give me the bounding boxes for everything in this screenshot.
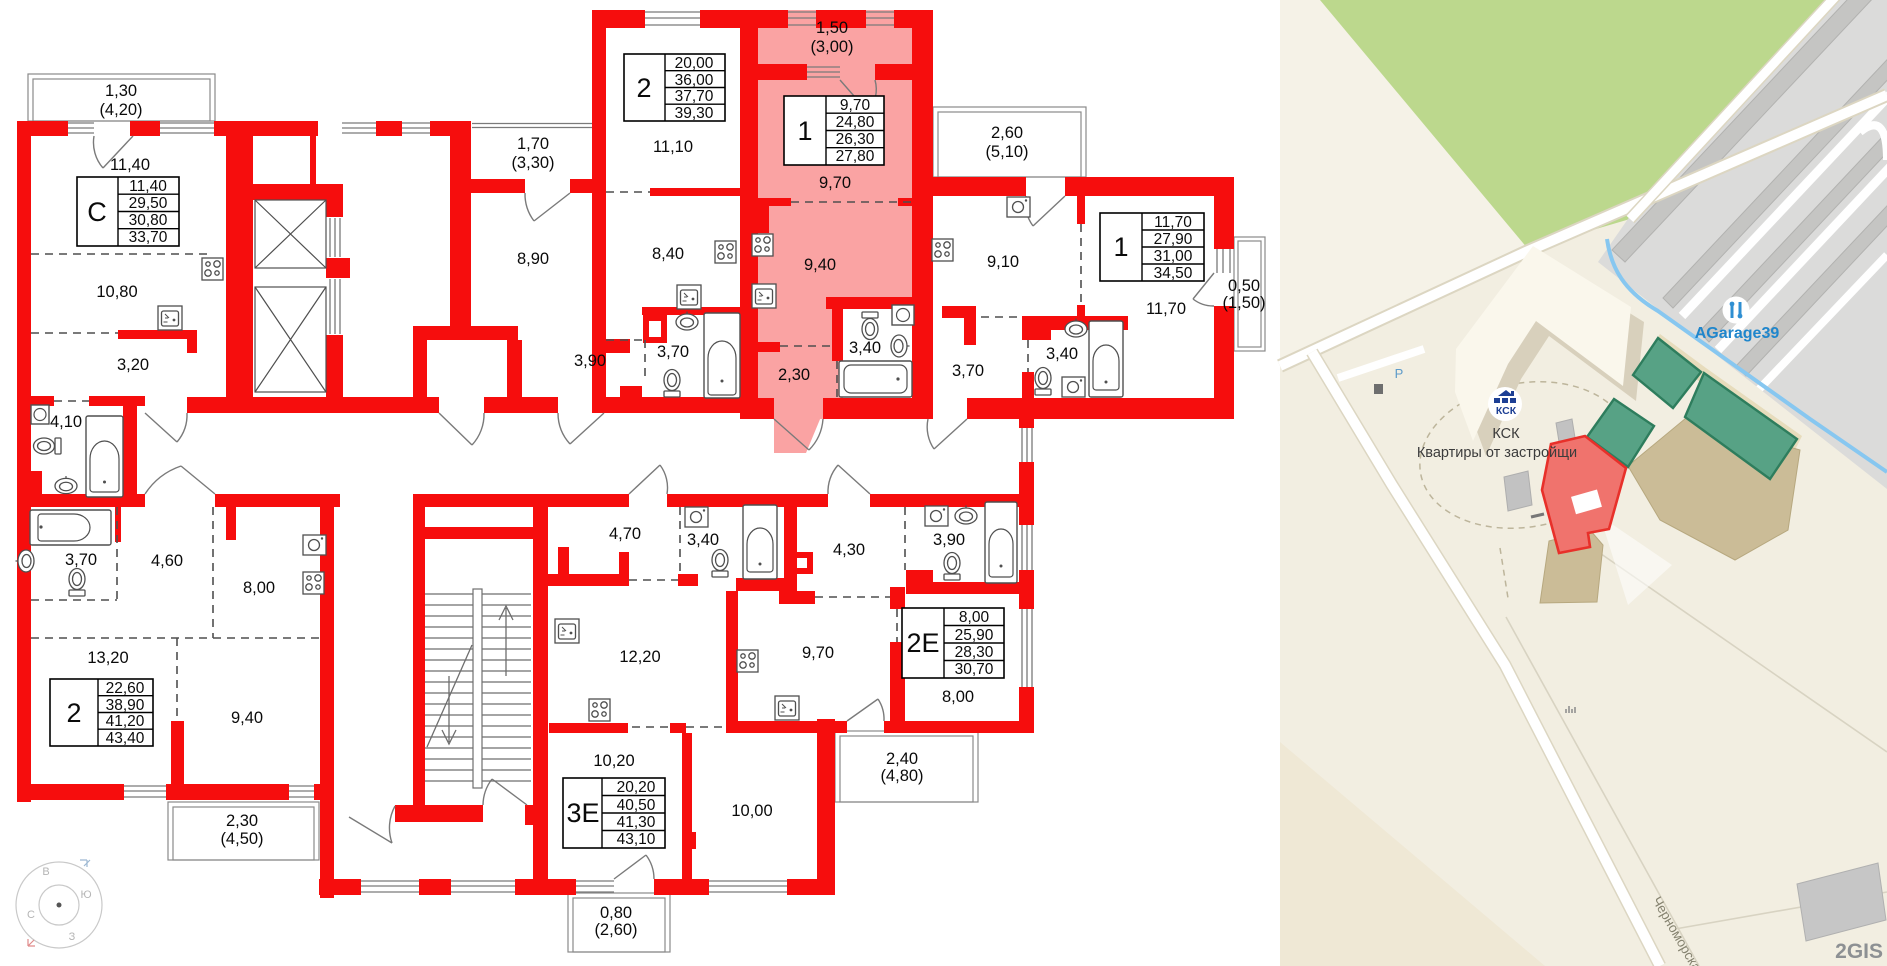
svg-text:1: 1 — [797, 116, 812, 146]
svg-text:3,70: 3,70 — [657, 343, 689, 361]
svg-text:2,30: 2,30 — [226, 812, 258, 830]
svg-text:Р: Р — [1395, 366, 1404, 381]
svg-text:33,70: 33,70 — [129, 229, 168, 246]
svg-text:3Е: 3Е — [566, 798, 599, 828]
svg-text:8,90: 8,90 — [517, 250, 549, 268]
svg-text:26,30: 26,30 — [836, 131, 875, 148]
svg-text:11,40: 11,40 — [129, 178, 167, 195]
svg-text:3,40: 3,40 — [1046, 345, 1078, 363]
svg-text:11,10: 11,10 — [653, 138, 693, 156]
svg-text:(3,00): (3,00) — [810, 38, 853, 56]
svg-text:27,90: 27,90 — [1154, 231, 1193, 248]
svg-text:43,10: 43,10 — [617, 831, 656, 848]
svg-text:10,00: 10,00 — [731, 802, 772, 820]
svg-text:3,90: 3,90 — [933, 531, 965, 549]
svg-text:4,70: 4,70 — [609, 525, 641, 543]
svg-text:AGarage39: AGarage39 — [1695, 325, 1780, 342]
svg-text:20,00: 20,00 — [675, 55, 714, 72]
svg-text:8,00: 8,00 — [243, 579, 275, 597]
svg-text:20,20: 20,20 — [617, 779, 656, 796]
svg-text:1,50: 1,50 — [816, 19, 848, 37]
svg-text:2,30: 2,30 — [778, 366, 810, 384]
svg-text:4,10: 4,10 — [50, 413, 82, 431]
svg-text:13,20: 13,20 — [87, 649, 128, 667]
svg-text:1: 1 — [1113, 232, 1128, 262]
svg-text:11,70: 11,70 — [1154, 214, 1192, 231]
svg-text:30,70: 30,70 — [955, 661, 994, 678]
svg-text:(4,50): (4,50) — [220, 830, 263, 848]
svg-text:8,00: 8,00 — [959, 609, 990, 626]
svg-text:2GIS: 2GIS — [1835, 940, 1883, 963]
svg-text:37,70: 37,70 — [675, 88, 714, 105]
svg-text:22,60: 22,60 — [106, 680, 145, 697]
svg-text:(3,30): (3,30) — [511, 154, 554, 172]
svg-text:11,40: 11,40 — [110, 156, 150, 174]
svg-text:38,90: 38,90 — [106, 697, 145, 714]
svg-text:3,70: 3,70 — [952, 362, 984, 380]
svg-text:0,50: 0,50 — [1228, 277, 1260, 295]
svg-text:(2,60): (2,60) — [594, 921, 637, 939]
svg-text:43,40: 43,40 — [106, 730, 145, 747]
svg-text:8,40: 8,40 — [652, 245, 684, 263]
svg-text:40,50: 40,50 — [617, 797, 656, 814]
svg-text:4,30: 4,30 — [833, 541, 865, 559]
svg-text:C: C — [87, 197, 107, 227]
svg-text:24,80: 24,80 — [836, 114, 875, 131]
svg-text:9,40: 9,40 — [231, 709, 263, 727]
svg-text:Квартиры от застройщи: Квартиры от застройщи — [1417, 445, 1577, 461]
svg-text:2,40: 2,40 — [886, 750, 918, 768]
svg-text:2Е: 2Е — [906, 628, 939, 658]
svg-text:30,80: 30,80 — [129, 212, 168, 229]
svg-text:8,00: 8,00 — [942, 688, 974, 706]
svg-text:9,70: 9,70 — [840, 97, 871, 114]
svg-text:41,20: 41,20 — [106, 713, 145, 730]
svg-text:З: З — [69, 931, 76, 943]
svg-text:3,40: 3,40 — [849, 339, 881, 357]
svg-text:3,90: 3,90 — [574, 352, 606, 370]
svg-text:Ю: Ю — [80, 889, 91, 901]
svg-text:12,20: 12,20 — [619, 648, 660, 666]
svg-text:28,30: 28,30 — [955, 644, 994, 661]
svg-text:(4,20): (4,20) — [99, 101, 142, 119]
svg-text:КСК: КСК — [1496, 405, 1517, 417]
svg-text:С: С — [27, 909, 35, 921]
svg-text:1,70: 1,70 — [517, 135, 549, 153]
svg-text:11,70: 11,70 — [1146, 300, 1186, 318]
svg-text:29,50: 29,50 — [129, 195, 168, 212]
svg-text:3,40: 3,40 — [687, 531, 719, 549]
svg-text:27,80: 27,80 — [836, 148, 875, 165]
svg-text:9,70: 9,70 — [802, 644, 834, 662]
svg-text:0,80: 0,80 — [600, 904, 632, 922]
svg-text:4,60: 4,60 — [151, 552, 183, 570]
svg-text:2: 2 — [66, 698, 81, 728]
svg-text:10,20: 10,20 — [593, 752, 634, 770]
svg-text:2: 2 — [636, 73, 651, 103]
svg-text:(4,80): (4,80) — [880, 767, 923, 785]
svg-text:36,00: 36,00 — [675, 72, 714, 89]
svg-text:10,80: 10,80 — [96, 283, 137, 301]
svg-text:3,20: 3,20 — [117, 356, 149, 374]
svg-text:25,90: 25,90 — [955, 627, 994, 644]
svg-text:3,70: 3,70 — [65, 551, 97, 569]
svg-text:9,70: 9,70 — [819, 174, 851, 192]
svg-text:9,10: 9,10 — [987, 253, 1019, 271]
svg-text:41,30: 41,30 — [617, 814, 656, 831]
svg-text:(5,10): (5,10) — [985, 143, 1028, 161]
svg-text:9,40: 9,40 — [804, 256, 836, 274]
svg-text:В: В — [42, 866, 49, 878]
svg-text:1,30: 1,30 — [105, 82, 137, 100]
svg-text:39,30: 39,30 — [675, 105, 714, 122]
svg-text:31,00: 31,00 — [1154, 248, 1193, 265]
svg-text:34,50: 34,50 — [1154, 265, 1193, 282]
svg-text:(1,50): (1,50) — [1222, 294, 1265, 312]
svg-text:2,60: 2,60 — [991, 124, 1023, 142]
svg-text:КСК: КСК — [1492, 426, 1520, 442]
